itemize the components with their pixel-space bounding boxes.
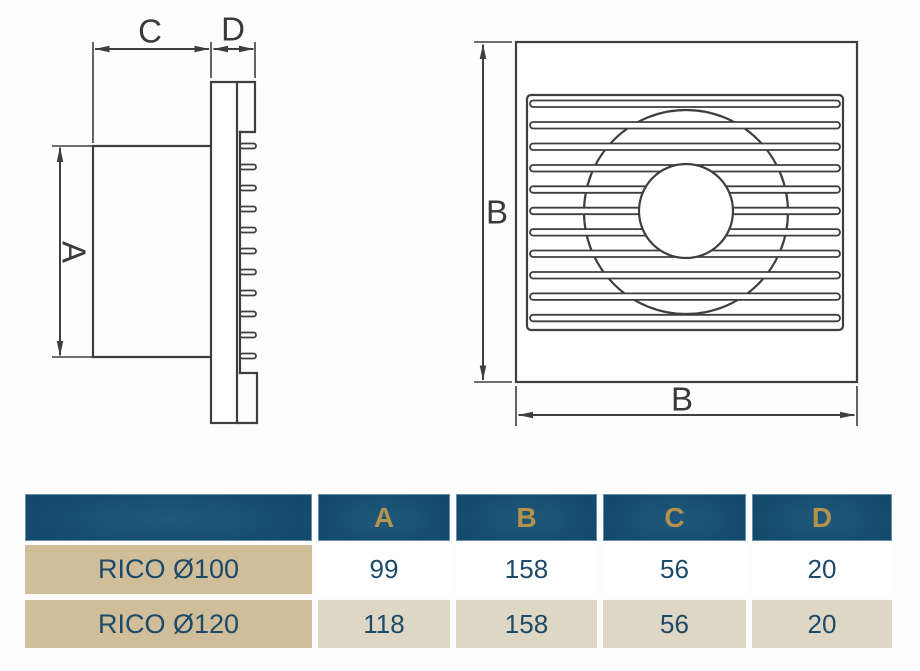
value-cell-d: 20 (752, 545, 892, 594)
dim-label-b-bottom: B (671, 383, 693, 416)
rear-top-block (237, 82, 255, 132)
header-cell-c: C (603, 494, 746, 541)
fan-spec-sheet: C D A B B A B C D RICO Ø100 99 158 56 20… (0, 0, 920, 671)
value-cell-b: 158 (456, 600, 597, 648)
rear-bottom-block (237, 373, 257, 423)
hub-circle (639, 164, 733, 258)
model-cell: RICO Ø100 (25, 545, 312, 594)
dim-label-c: C (138, 15, 162, 48)
value-cell-b: 158 (456, 545, 597, 594)
louvre-teeth (240, 144, 256, 359)
dim-label-d: D (221, 13, 245, 46)
dim-label-b-left: B (486, 196, 508, 229)
header-cell-a: A (318, 494, 450, 541)
model-cell: RICO Ø120 (25, 600, 312, 648)
header-cell-d: D (752, 494, 892, 541)
value-cell-a: 99 (318, 545, 450, 594)
dim-label-a: A (58, 241, 91, 263)
duct-outline (93, 146, 211, 357)
front-view (516, 42, 857, 382)
header-cell-b: B (456, 494, 597, 541)
value-cell-a: 118 (318, 600, 450, 648)
dimensions-table: A B C D RICO Ø100 99 158 56 20 RICO Ø120… (25, 494, 896, 648)
front-panel-side (211, 82, 237, 423)
value-cell-c: 56 (603, 545, 746, 594)
side-view (93, 82, 257, 423)
table-row-rico-120: RICO Ø120 118 158 56 20 (25, 600, 896, 648)
value-cell-d: 20 (752, 600, 892, 648)
table-header-row: A B C D (25, 494, 896, 541)
value-cell-c: 56 (603, 600, 746, 648)
fan-technical-drawing (0, 0, 920, 490)
header-cell-blank (25, 494, 312, 541)
table-row-rico-100: RICO Ø100 99 158 56 20 (25, 545, 896, 594)
